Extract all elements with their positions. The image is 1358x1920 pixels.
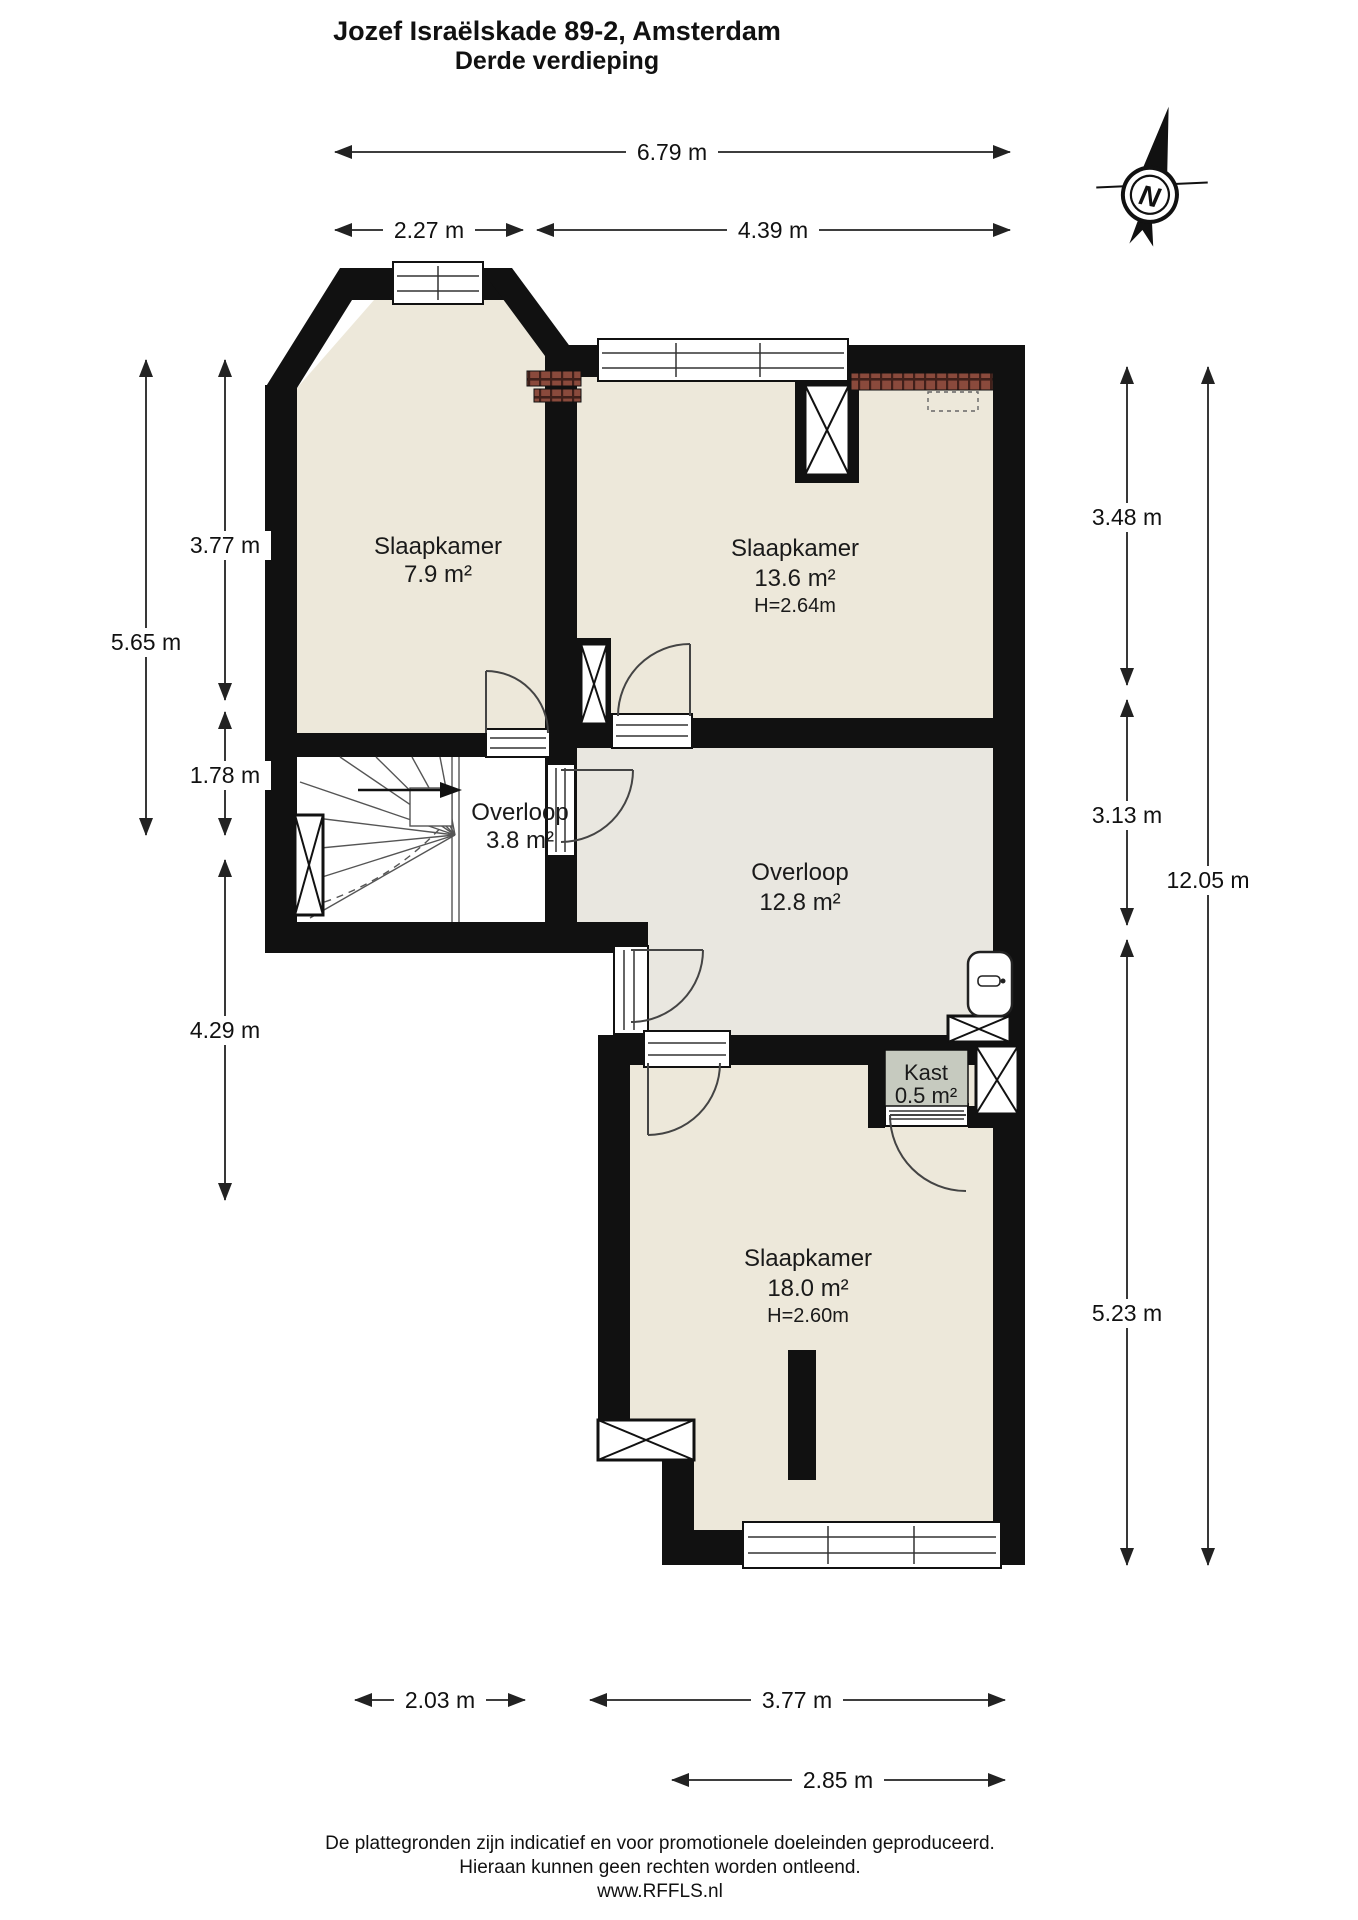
dim-right-mid: 3.13 m (1092, 802, 1162, 828)
dim-right-upper: 3.48 m (1092, 504, 1162, 530)
shaft-above-kast (948, 1016, 1010, 1042)
label-bedroom-small-name: Slaapkamer (374, 533, 502, 560)
label-bedroom-large-name: Slaapkamer (744, 1245, 872, 1272)
dim-top-right: 4.39 m (738, 217, 808, 243)
floor-bedroom-small (297, 300, 545, 733)
dim-left-mid: 1.78 m (190, 762, 260, 788)
brick-strip-right (851, 373, 993, 390)
dim-bottom-mid: 3.77 m (762, 1687, 832, 1713)
dim-right-total: 12.05 m (1166, 867, 1249, 893)
dim-bottom-left: 2.03 m (405, 1687, 475, 1713)
shaft-right-of-kast (976, 1046, 1018, 1114)
dim-left-upper: 3.77 m (190, 532, 260, 558)
floor-plan-svg: Slaapkamer 7.9 m² Slaapkamer 13.6 m² H=2… (0, 0, 1358, 1920)
brick-strip-left-b (534, 389, 581, 402)
toilet (968, 952, 1012, 1016)
dim-left-lower: 4.29 m (190, 1017, 260, 1043)
label-bedroom-small-area: 7.9 m² (404, 561, 472, 588)
wall-mid-b (690, 718, 993, 748)
window-box-bottom-left (598, 1420, 694, 1460)
brick-strip-left-a (527, 371, 581, 386)
wall-bedroom-small-bottom-b (550, 733, 577, 757)
shaft-stair-wall (295, 815, 323, 915)
wall-bedroom-large-left (598, 1065, 630, 1423)
label-bedroom-large-area: 18.0 m² (767, 1275, 848, 1302)
shaft-dividing-wall (581, 644, 607, 724)
label-bedroom-mid-name: Slaapkamer (731, 535, 859, 562)
shaft-bedroom-mid-top (805, 385, 849, 475)
footer-line-3: www.RFFLS.nl (0, 1880, 1320, 1904)
dim-top-total: 6.79 m (637, 139, 707, 165)
window-top-right (598, 339, 848, 381)
label-bedroom-mid-height: H=2.64m (754, 595, 836, 617)
label-bedroom-mid-area: 13.6 m² (754, 565, 835, 592)
label-landing-small-name: Overloop (471, 799, 568, 826)
wall-left-outer (265, 385, 297, 953)
wall-stair-bottom (265, 922, 648, 953)
chimney-bar (788, 1350, 816, 1480)
footer-line-1: De plattegronden zijn indicatief en voor… (0, 1832, 1320, 1856)
wall-overloop-bottom-b (726, 1035, 868, 1065)
floorplan-page: Jozef Israëlskade 89-2, Amsterdam Derde … (0, 0, 1358, 1920)
wall-overloop-bottom-a (598, 1035, 648, 1065)
footer-disclaimer: De plattegronden zijn indicatief en voor… (0, 1832, 1320, 1904)
wall-bedroom-small-bottom-a (297, 733, 486, 757)
label-kast-area: 0.5 m² (895, 1083, 957, 1108)
footer-line-2: Hieraan kunnen geen rechten worden ontle… (0, 1856, 1320, 1880)
label-bedroom-large-height: H=2.60m (767, 1305, 849, 1327)
dim-right-lower: 5.23 m (1092, 1300, 1162, 1326)
label-landing-large-name: Overloop (751, 859, 848, 886)
wall-kast-bottom-l (868, 1106, 885, 1128)
compass-rose: N (1086, 96, 1221, 257)
label-landing-large-area: 12.8 m² (759, 889, 840, 916)
label-landing-small-area: 3.8 m² (486, 827, 554, 854)
floors (297, 300, 993, 1530)
window-top-left (393, 262, 483, 304)
window-bottom (743, 1522, 1001, 1568)
dim-bottom-inner: 2.85 m (803, 1767, 873, 1793)
label-kast-name: Kast (904, 1060, 948, 1085)
wall-dividing (545, 352, 577, 953)
dim-left-outer: 5.65 m (111, 629, 181, 655)
dim-top-left: 2.27 m (394, 217, 464, 243)
